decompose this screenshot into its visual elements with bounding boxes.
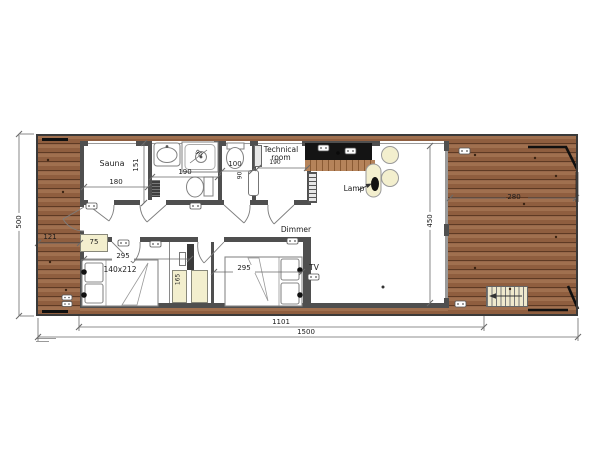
bed-size-label: 140x212 — [100, 266, 140, 274]
cabinet-dim: 90 — [238, 168, 245, 182]
chair — [382, 170, 399, 187]
tech-door — [268, 205, 294, 224]
deck-right-dim: 280 — [503, 194, 525, 202]
sauna-width-dim: 180 — [106, 179, 126, 187]
overall-depth-dim: 500 — [16, 213, 24, 231]
outlet-symbol — [459, 148, 470, 154]
tech-dim: 190 — [268, 160, 282, 167]
sauna-label: Sauna — [94, 160, 130, 169]
floor-plan: Sauna 180 151 190 90 100 Technical room … — [0, 0, 605, 454]
kitchen-outlet — [318, 145, 329, 151]
outlet-symbol — [118, 240, 129, 246]
tv-outlet — [308, 274, 319, 280]
sauna-depth-dim: 151 — [133, 156, 141, 174]
outlet-symbol — [86, 203, 97, 209]
wc-door — [224, 205, 250, 223]
bedroom2-width-dim: 295 — [233, 265, 255, 273]
bath-door — [140, 205, 166, 222]
lamp-label: Lamp — [342, 185, 366, 193]
outlet-symbol — [62, 295, 72, 300]
bedroom1-width-dim: 295 — [112, 253, 134, 261]
bath-width-dim: 190 — [175, 169, 195, 177]
chair — [382, 147, 399, 164]
deck-railings — [528, 147, 578, 310]
counter-fitting — [336, 151, 340, 155]
outlet-symbol — [190, 203, 201, 209]
closet-depth-dim: 165 — [176, 271, 183, 287]
dimmer-outlet — [287, 238, 298, 244]
outlet-symbol — [455, 301, 466, 307]
outlet-symbol — [150, 241, 161, 247]
overall-length-dim: 1500 — [290, 329, 322, 337]
entrance-door — [63, 207, 84, 231]
interior-length-dim: 1101 — [265, 319, 297, 327]
toilet — [187, 177, 214, 197]
deck-left-dim: 121 — [42, 234, 58, 242]
living-depth-dim: 450 — [427, 212, 435, 230]
lamp-icon — [371, 177, 379, 191]
kitchen-outlet — [345, 148, 356, 154]
dimmer-label: Dimmer — [279, 226, 313, 234]
railing-bottom-diagonal — [568, 286, 578, 309]
tv-label: TV — [305, 264, 323, 272]
outlet-symbol — [62, 302, 72, 307]
wardrobe-dim: 75 — [87, 239, 101, 247]
sink — [154, 143, 180, 166]
floor-socket — [382, 286, 385, 289]
door-arcs — [63, 205, 294, 263]
bedroom2-door — [198, 242, 224, 263]
stairs-arrow — [489, 293, 522, 298]
